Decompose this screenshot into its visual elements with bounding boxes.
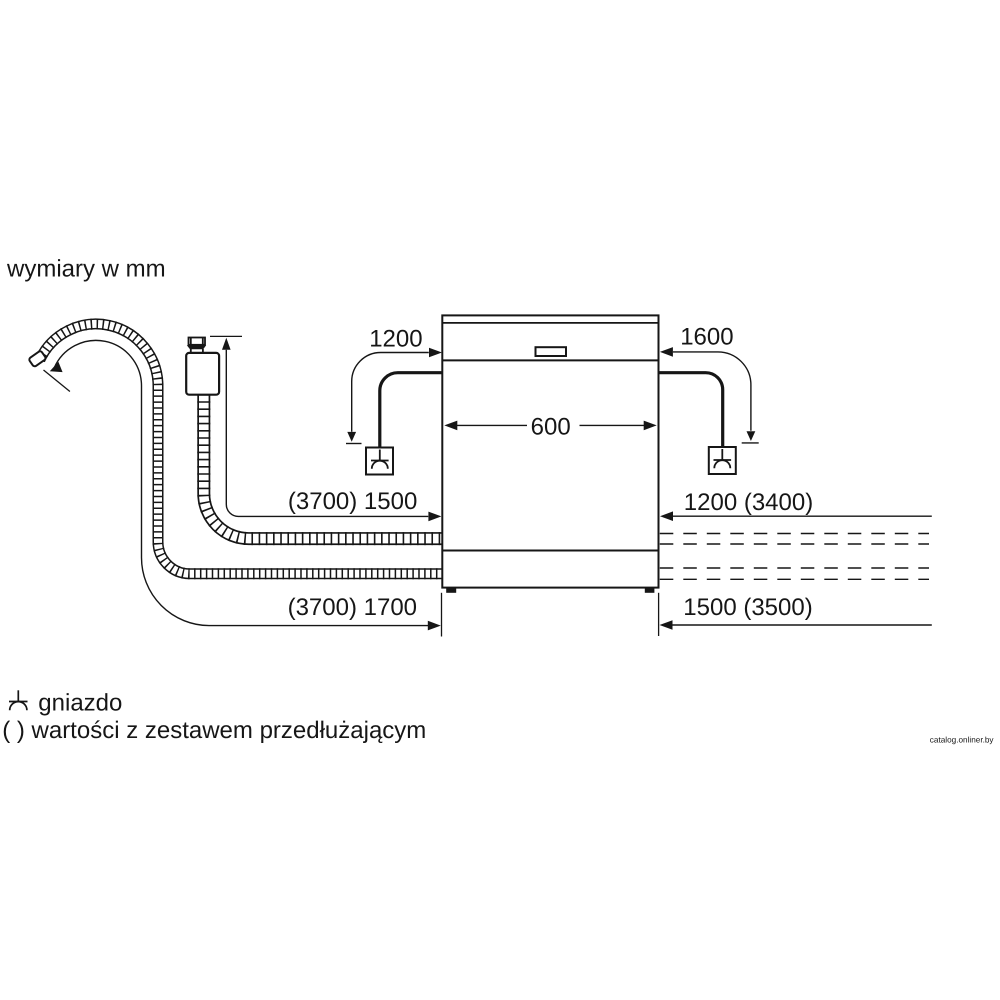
svg-text:1500 (3500): 1500 (3500) — [683, 594, 812, 621]
svg-text:600: 600 — [531, 413, 571, 440]
svg-text:catalog.onliner.by: catalog.onliner.by — [930, 736, 995, 745]
svg-text:1600: 1600 — [680, 324, 733, 351]
svg-text:(3700) 1500: (3700) 1500 — [288, 488, 417, 515]
svg-text:wymiary w mm: wymiary w mm — [6, 256, 166, 283]
svg-text:gniazdo: gniazdo — [38, 689, 122, 716]
svg-text:1200 (3400): 1200 (3400) — [684, 489, 813, 516]
svg-text:( ) wartości z zestawem przedł: ( ) wartości z zestawem przedłużającym — [2, 717, 426, 744]
svg-text:(3700) 1700: (3700) 1700 — [288, 594, 417, 621]
svg-text:1200: 1200 — [369, 325, 422, 352]
